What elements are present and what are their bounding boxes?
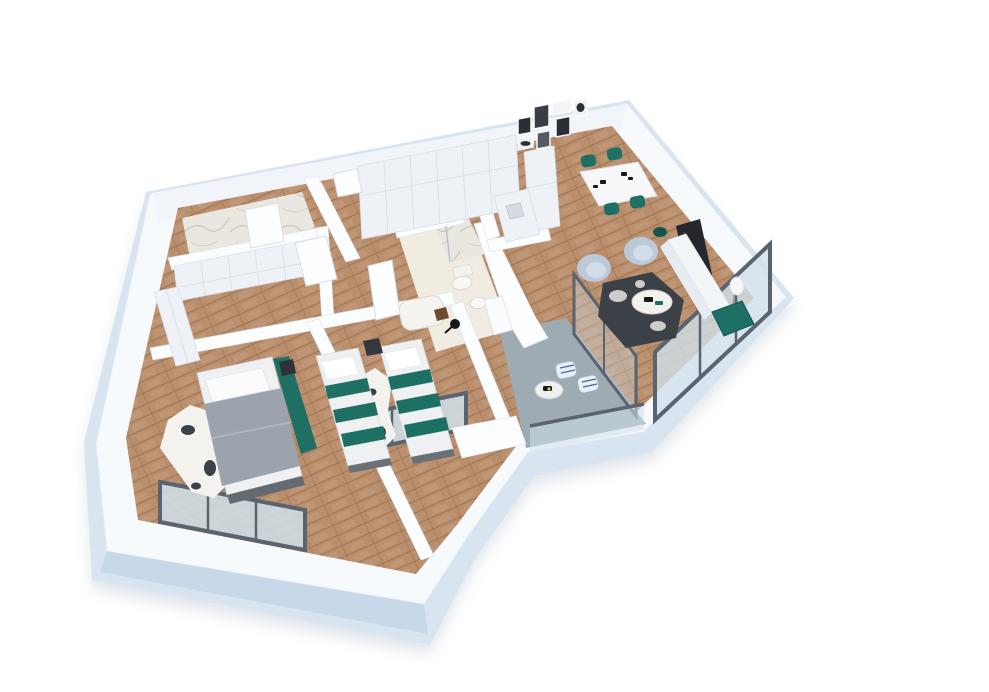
door-bathroom-small <box>245 203 284 248</box>
master-nightstand <box>279 359 296 376</box>
gallery-frame-2 <box>534 104 549 129</box>
door-entrance <box>333 169 362 197</box>
armchair-1 <box>577 254 611 282</box>
floorplan-render: 3D isometric rendering of a two-bedroom … <box>0 0 989 692</box>
armchair-2 <box>624 237 658 265</box>
gallery-frame-5-art <box>577 103 585 112</box>
gallery-frame-7 <box>537 131 550 150</box>
bistro-table <box>535 381 563 399</box>
gallery-frame-1 <box>518 117 531 136</box>
gallery-frame-3 <box>553 100 571 116</box>
gallery-frame-4 <box>556 116 570 137</box>
coffee-table <box>632 290 672 314</box>
gallery-frame-6-art <box>521 141 531 146</box>
floorplan-svg <box>0 0 989 692</box>
teal-pouf <box>653 227 667 237</box>
